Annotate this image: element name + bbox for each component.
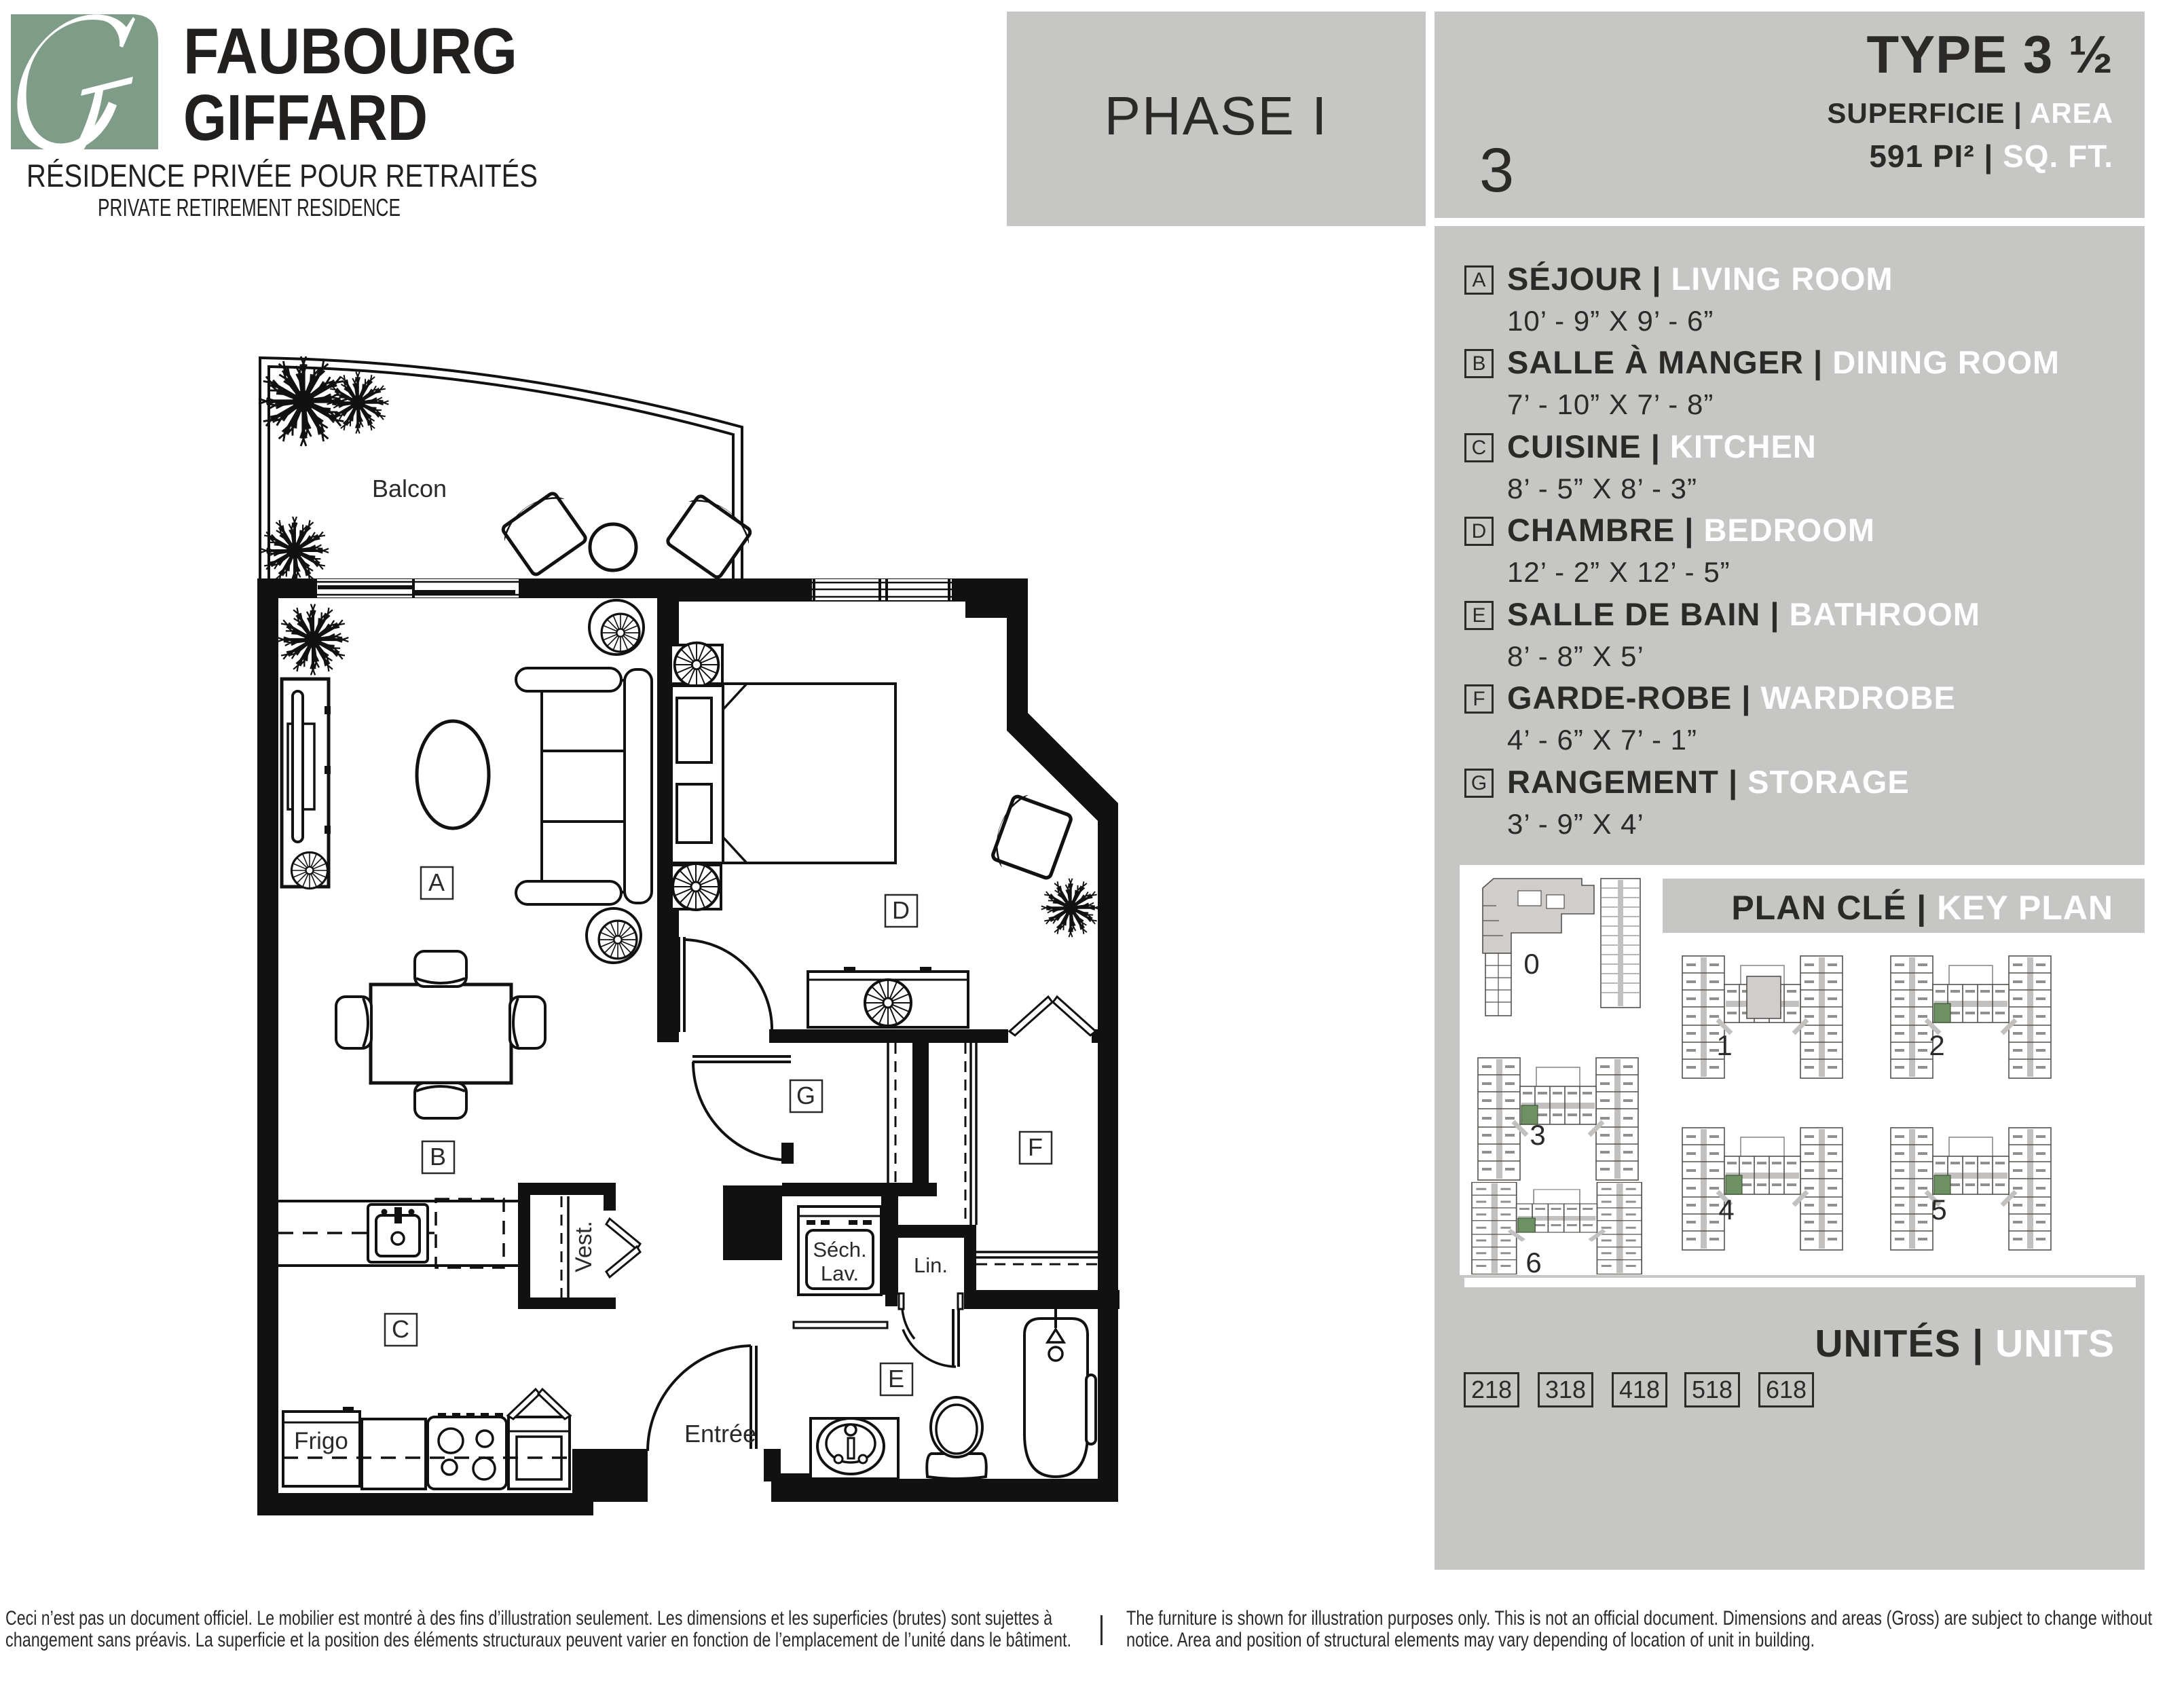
svg-text:Ceci n’est pas un document off: Ceci n’est pas un document officiel. Le … <box>5 1607 1052 1629</box>
svg-text:notice. Area and position of s: notice. Area and position of structural … <box>1126 1629 1815 1651</box>
svg-text:changement sans préavis. La su: changement sans préavis. La superficie e… <box>5 1629 1071 1651</box>
svg-text:Frigo: Frigo <box>294 1428 348 1454</box>
svg-text:Vest.: Vest. <box>571 1221 597 1272</box>
svg-text:Lin.: Lin. <box>914 1253 948 1277</box>
svg-text:Séch.: Séch. <box>813 1238 866 1262</box>
svg-text:The furniture is shown for ill: The furniture is shown for illustration … <box>1126 1607 2153 1629</box>
svg-text:C: C <box>392 1315 409 1343</box>
svg-text:Entrée: Entrée <box>684 1420 756 1448</box>
svg-text:G: G <box>796 1082 815 1109</box>
svg-text:A: A <box>428 868 445 896</box>
svg-text:E: E <box>888 1365 904 1393</box>
svg-text:F: F <box>1028 1133 1043 1161</box>
svg-text:Balcon: Balcon <box>372 475 447 502</box>
svg-text:D: D <box>892 896 910 924</box>
svg-text:B: B <box>430 1143 446 1171</box>
svg-text:Lav.: Lav. <box>821 1262 859 1285</box>
